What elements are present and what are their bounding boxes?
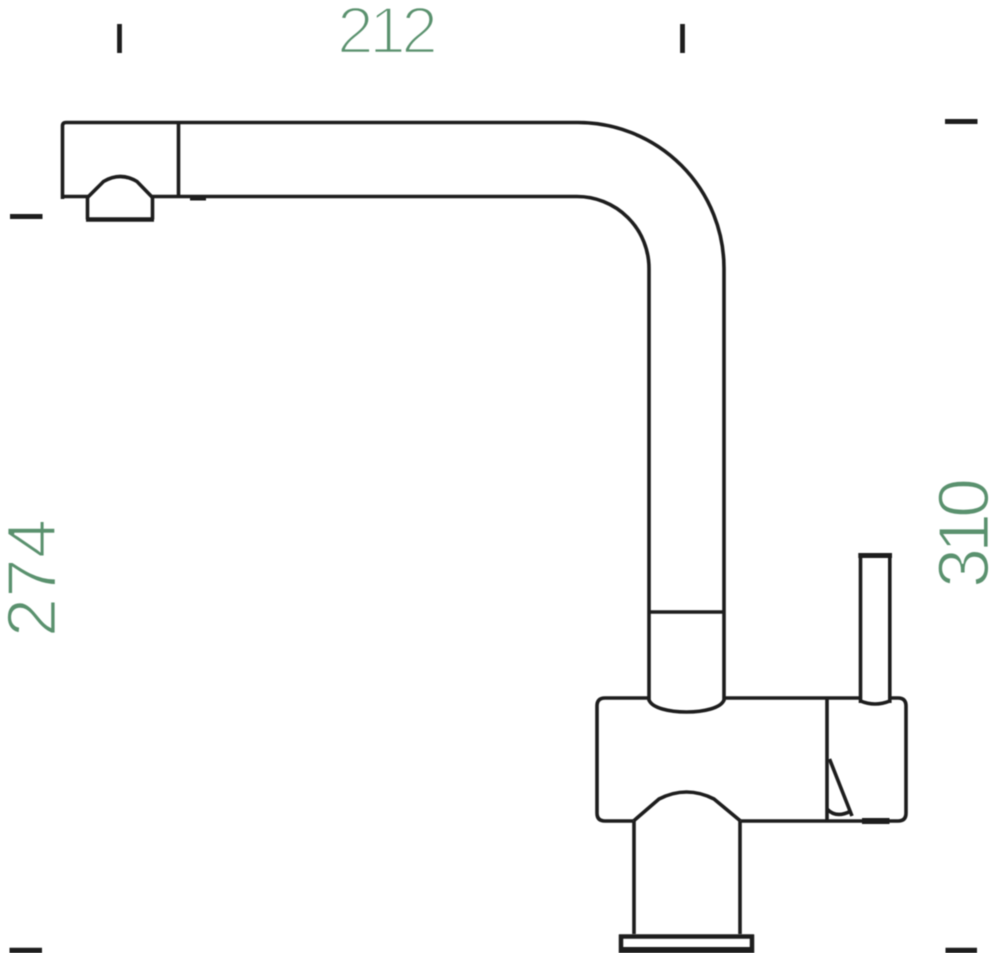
svg-text:274: 274 <box>0 519 71 637</box>
svg-text:212: 212 <box>337 0 438 67</box>
svg-text:310: 310 <box>925 478 1000 588</box>
